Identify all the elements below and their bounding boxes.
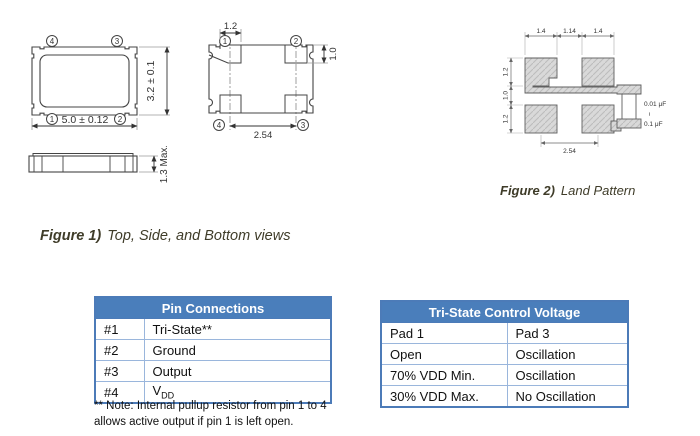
pin1-marker: 1: [47, 114, 58, 125]
capacitor-range-symbol: ~: [645, 112, 652, 116]
svg-text:1: 1: [50, 115, 55, 124]
side-view-drawing: 1.3 Max.: [18, 146, 188, 191]
function-cell: Output: [144, 361, 331, 382]
vdd-symbol: V: [153, 383, 162, 398]
figure2-caption-text: Land Pattern: [561, 183, 635, 198]
datasheet-page: 4 3 1 2 5.0 ± 0.12 3.2 ± 0.1: [0, 0, 700, 436]
pad-width-dim: 1.2: [224, 21, 237, 32]
dim-bottom-pitch: 2.54: [563, 148, 576, 155]
capacitor-min-value: 0.01 μF: [644, 101, 666, 108]
svg-text:2: 2: [294, 37, 299, 46]
land-pad2: [582, 58, 614, 86]
pin3-marker: 3: [112, 36, 123, 47]
pad1-outline: [209, 45, 241, 63]
dim-left-top-pad-h: 1.2: [503, 67, 510, 76]
table-row: #1 Tri-State**: [95, 319, 331, 340]
pin3-marker: 3: [298, 120, 309, 131]
side-view-height-dim: 1.3 Max.: [159, 146, 170, 183]
pad1-cell: Pad 1: [381, 323, 507, 344]
pin-table-title: Pin Connections: [95, 297, 331, 319]
function-cell: Tri-State**: [144, 319, 331, 340]
note-line-2: allows active output if pin 1 is left op…: [94, 414, 354, 430]
side-body-outline: [29, 156, 137, 172]
pad3-cell: Oscillation: [507, 365, 628, 386]
top-view-width-dim: 5.0 ± 0.12: [62, 114, 109, 126]
pad1-cell: Open: [381, 344, 507, 365]
land-pad4: [525, 105, 557, 133]
pin1-marker: 1: [220, 36, 231, 47]
figure1-caption-text: Top, Side, and Bottom views: [107, 228, 290, 244]
top-view-drawing: 4 3 1 2 5.0 ± 0.12 3.2 ± 0.1: [18, 18, 188, 140]
svg-text:3: 3: [115, 37, 120, 46]
capacitor-body-lines: [622, 94, 636, 119]
pin-cell: #2: [95, 340, 144, 361]
pin2-marker: 2: [291, 36, 302, 47]
pin4-marker: 4: [47, 36, 58, 47]
figure2-caption: Figure 2)Land Pattern: [500, 183, 635, 198]
function-cell: Ground: [144, 340, 331, 361]
capacitor-bottom-land: [617, 119, 641, 128]
figure1-caption: Figure 1)Top, Side, and Bottom views: [40, 228, 290, 244]
svg-text:3: 3: [301, 121, 306, 130]
figure1-caption-label: Figure 1): [40, 228, 101, 244]
pin-cell: #1: [95, 319, 144, 340]
dim-top-gap: 1.14: [563, 28, 576, 35]
figure2-caption-label: Figure 2): [500, 183, 555, 198]
table-row: #3 Output: [95, 361, 331, 382]
tristate-control-table: Tri-State Control Voltage Pad 1 Pad 3 Op…: [380, 300, 629, 408]
dim-top-right-pad-w: 1.4: [593, 28, 602, 35]
svg-text:4: 4: [50, 37, 55, 46]
table-row: #2 Ground: [95, 340, 331, 361]
dim-left-bottom-pad-h: 1.2: [503, 114, 510, 123]
pin-connections-table: Pin Connections #1 Tri-State** #2 Ground…: [94, 296, 332, 404]
package-outline: [32, 47, 137, 115]
svg-text:2: 2: [118, 115, 123, 124]
capacitor-max-value: 0.1 μF: [644, 121, 663, 128]
pin4-marker: 4: [214, 120, 225, 131]
pin2-marker: 2: [115, 114, 126, 125]
pad1-cell: 30% VDD Max.: [381, 386, 507, 408]
table-row: Open Oscillation: [381, 344, 628, 365]
land-pattern-drawing: 1.4 1.14 1.4 1.2 1.0 1.2 2.54 0.01 μF ~ …: [485, 15, 700, 165]
package-lid-outline: [40, 55, 129, 107]
side-extension-lines: [139, 156, 158, 172]
table-row: 30% VDD Max. No Oscillation: [381, 386, 628, 408]
table-row: Pad 1 Pad 3: [381, 323, 628, 344]
pad-centerlines: [230, 38, 296, 130]
pad3-cell: Pad 3: [507, 323, 628, 344]
bottom-outline: [209, 45, 313, 113]
pad1-cell: 70% VDD Min.: [381, 365, 507, 386]
pad3-cell: Oscillation: [507, 344, 628, 365]
pad4-outline: [220, 95, 241, 113]
pin-table-note: ** Note: Internal pullup resistor from p…: [94, 398, 354, 430]
pitch-dim: 2.54: [254, 130, 273, 140]
dim-top-left-pad-w: 1.4: [536, 28, 545, 35]
pad3-cell: No Oscillation: [507, 386, 628, 408]
pad-height-dim: 1.0: [328, 47, 339, 60]
side-castellation-lines: [34, 156, 133, 172]
bottom-view-drawing: 1 2 4 3 1.2 1.0 2.54: [195, 8, 350, 140]
top-extension-lines: [525, 32, 614, 55]
svg-text:1: 1: [223, 37, 228, 46]
pin-cell: #3: [95, 361, 144, 382]
note-line-1: ** Note: Internal pullup resistor from p…: [94, 398, 354, 414]
svg-text:4: 4: [217, 121, 222, 130]
top-view-height-dim: 3.2 ± 0.1: [145, 60, 157, 101]
bottom-extension-lines: [541, 135, 598, 147]
table-row: 70% VDD Min. Oscillation: [381, 365, 628, 386]
land-pad3: [582, 105, 614, 133]
tristate-table-title: Tri-State Control Voltage: [381, 301, 628, 323]
pad-height-extension-lines: [308, 45, 328, 63]
dim-left-gap: 1.0: [503, 91, 510, 100]
